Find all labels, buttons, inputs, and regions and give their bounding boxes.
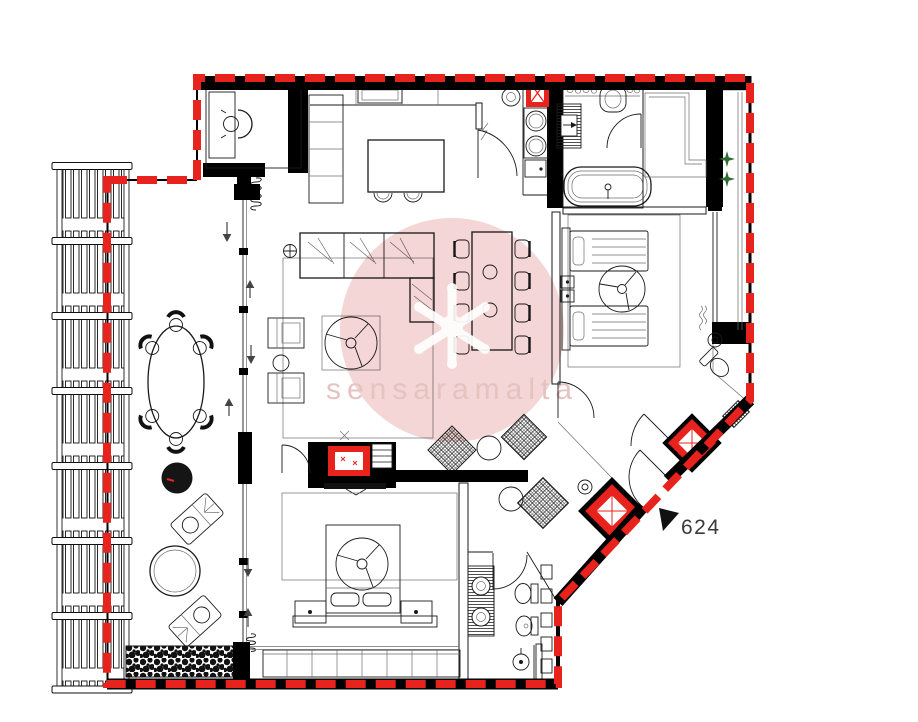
wall-niches: [541, 565, 552, 673]
pergola-louvers: [52, 163, 132, 694]
slide-direction-arrows: [224, 222, 255, 627]
side-table: [499, 487, 523, 511]
bathroom-door: [607, 114, 641, 148]
wall-stub: [234, 184, 260, 200]
unit-number: 624: [681, 516, 721, 539]
armchair: [268, 318, 304, 348]
entrance-marker-icon: [659, 508, 679, 531]
headboard-ledge: [293, 616, 437, 627]
guest-wc-toilet: [699, 347, 734, 382]
desk: [209, 92, 235, 158]
side-table: [477, 436, 501, 460]
lounge-chair: [168, 595, 222, 648]
twin-bed: [570, 306, 648, 346]
ceiling-symbol: [284, 245, 297, 258]
balcony: [719, 90, 748, 330]
master-door: [282, 445, 310, 473]
study-room: [206, 88, 301, 168]
nightstand: [561, 276, 574, 302]
terrace: [52, 163, 242, 694]
lobby-recess: [645, 93, 706, 177]
master-bedroom: [250, 493, 460, 677]
fire-pit: [162, 463, 193, 494]
kitchen-island: [368, 140, 444, 192]
bar-stool: [374, 193, 392, 202]
outdoor-chair: [168, 433, 184, 452]
wall-chunk: [708, 198, 722, 211]
planter: [126, 646, 242, 677]
pouf: [518, 478, 569, 529]
kitchen: [309, 79, 549, 203]
outdoor-side-table: [150, 546, 200, 596]
double-vanity: [468, 566, 494, 636]
nightstand: [401, 601, 432, 623]
floor-plan-canvas: sensaramalta 624: [0, 0, 918, 722]
bathroom: [557, 85, 706, 208]
pillow: [573, 312, 584, 340]
shelving: [372, 444, 392, 468]
bathtub: [564, 167, 651, 206]
kitchen-door: [478, 130, 517, 178]
fireplace: [328, 446, 370, 476]
bidet: [516, 616, 538, 636]
bar-stool: [404, 193, 422, 202]
wardrobe: [263, 650, 460, 677]
towel-radiator: [557, 104, 581, 148]
outdoor-chair: [168, 312, 184, 331]
spotlight: [578, 480, 592, 494]
nightstand: [295, 601, 326, 623]
ceiling-fan: [599, 266, 645, 312]
watermark-text: sensaramalta: [326, 373, 578, 406]
ensuite-bathroom: [468, 552, 558, 680]
oven: [525, 160, 546, 177]
toilet: [515, 584, 538, 604]
lounge-chair: [170, 493, 224, 546]
shower: [513, 644, 542, 680]
side-table: [273, 355, 289, 371]
tv-fireplace-wall: [282, 431, 528, 495]
wall-stub: [238, 432, 252, 484]
wall-stub: [233, 642, 250, 684]
floor-plan: sensaramalta 624: [0, 0, 918, 722]
ceiling-fan: [336, 538, 388, 590]
wall-study-right: [288, 88, 308, 173]
window-line: [250, 647, 459, 650]
wall-door-jamb: [476, 103, 482, 129]
window: [713, 212, 717, 322]
office-chair: [221, 110, 252, 138]
pillow: [573, 237, 584, 265]
wall-study-bottom: [203, 163, 265, 177]
entrance-door: [629, 450, 668, 507]
sliding-glass-wall: [224, 178, 262, 652]
cooktop: [524, 108, 548, 158]
unit-label: 624: [659, 508, 721, 539]
armchair: [268, 373, 304, 403]
outdoor-dining-set: [137, 312, 214, 452]
pillow: [363, 593, 391, 606]
bedroom-2: [561, 212, 748, 402]
twin-bed: [570, 231, 648, 271]
wall-bath-right: [706, 83, 723, 207]
entrance-hall: [558, 333, 749, 545]
pillow: [331, 593, 359, 606]
dimension-marks: [700, 306, 707, 330]
